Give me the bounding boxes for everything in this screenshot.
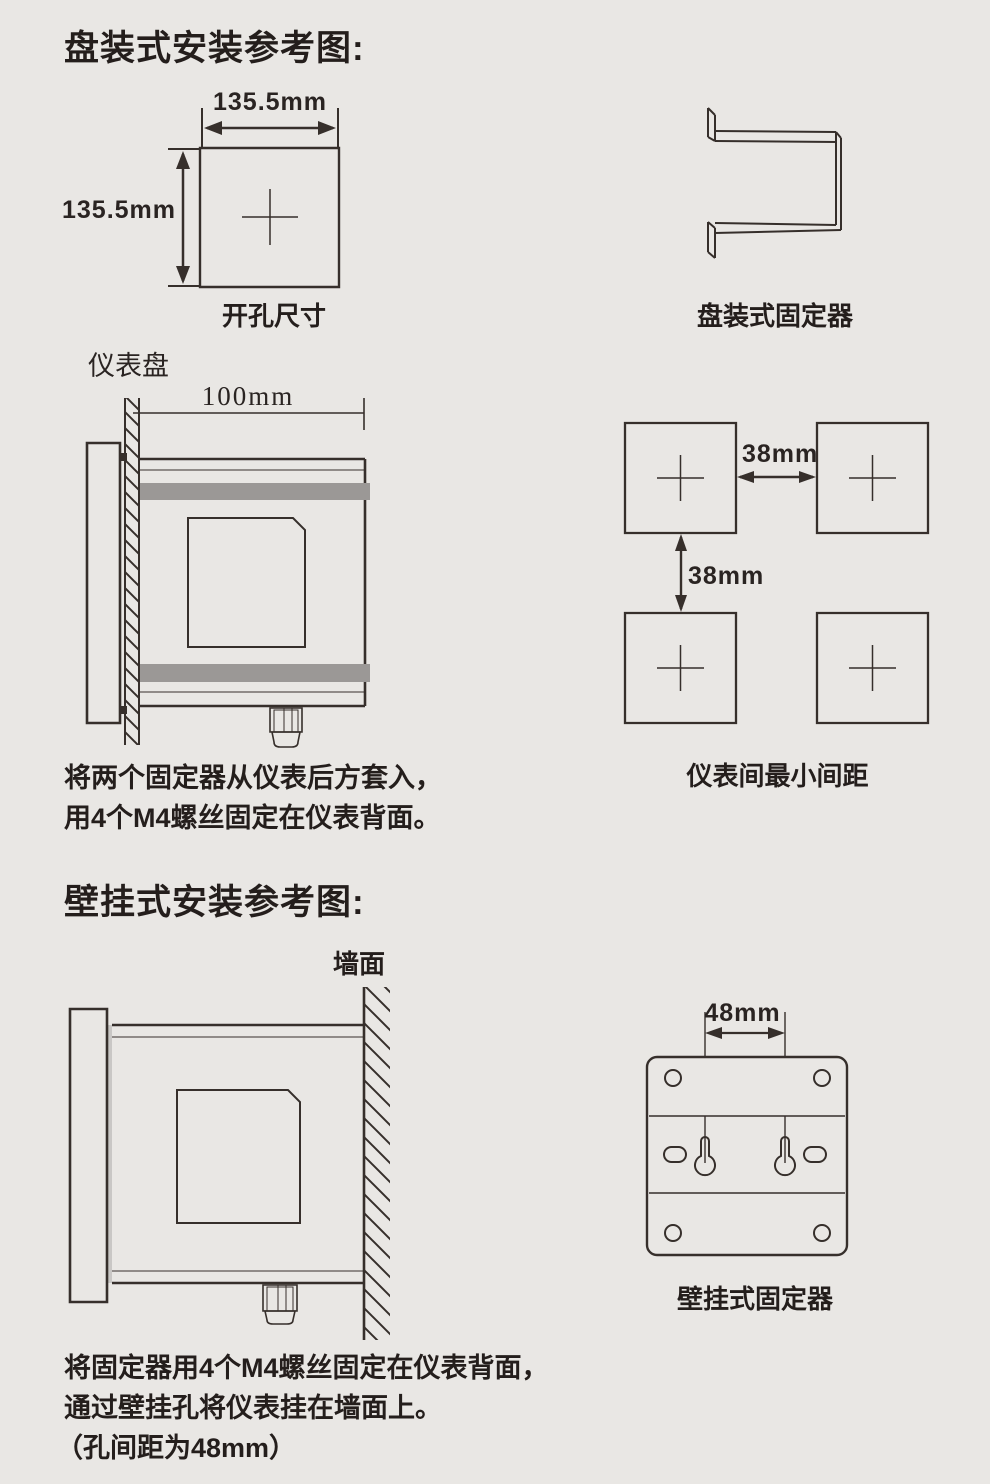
front-bezel: [87, 443, 120, 723]
panel-mount-note: 将两个固定器从仪表后方套入， 用4个M4螺丝固定在仪表背面。: [64, 758, 442, 838]
label-window: [177, 1090, 300, 1223]
wall-mount-note: 将固定器用4个M4螺丝固定在仪表背面， 通过壁挂孔将仪表挂在墙面上。 （孔间距为…: [64, 1348, 549, 1468]
cutout-width-dimension: 135.5mm: [145, 88, 395, 117]
front-bezel: [70, 1009, 107, 1302]
fixer-bar-bottom: [139, 664, 370, 682]
wall-note-line2: 通过壁挂孔将仪表挂在墙面上。: [64, 1388, 549, 1428]
cable-gland: [270, 708, 302, 747]
vertical-gap-dimension: 38mm: [688, 562, 764, 591]
wall-note-line1: 将固定器用4个M4螺丝固定在仪表背面，: [64, 1348, 549, 1388]
wall-mount-side-view: [50, 975, 400, 1345]
panel-wall-hatch: [125, 398, 139, 745]
wall-note-line3: （孔间距为48mm）: [56, 1428, 549, 1468]
panel-mount-title: 盘装式安装参考图:: [64, 20, 365, 71]
panel-fixer-bracket-drawing: [690, 95, 860, 270]
wall-hatch: [364, 987, 390, 1340]
panel-mount-side-view: [55, 390, 385, 760]
minimum-spacing-caption: 仪表间最小间距: [660, 756, 895, 793]
installation-diagram-page: 盘装式安装参考图: 135.5mm 135.5mm 开孔尺寸: [0, 0, 990, 1484]
cutout-caption: 开孔尺寸: [204, 296, 344, 333]
label-window: [188, 518, 305, 647]
panel-fixer-caption: 盘装式固定器: [690, 296, 860, 333]
hole-spacing-dimension: 48mm: [660, 999, 825, 1028]
cutout-height-dimension: 135.5mm: [62, 196, 176, 225]
cable-gland: [263, 1285, 297, 1324]
wall-fixer-plate-drawing: [630, 995, 870, 1275]
wall-fixer-caption: 壁挂式固定器: [655, 1279, 855, 1316]
horizontal-gap-dimension: 38mm: [742, 440, 818, 469]
instrument-body: [112, 1025, 364, 1283]
panel-note-line1: 将两个固定器从仪表后方套入，: [64, 758, 442, 798]
fixer-bar-top: [139, 483, 370, 500]
panel-note-line2: 用4个M4螺丝固定在仪表背面。: [64, 798, 442, 838]
instrument-panel-label: 仪表盘: [88, 344, 169, 383]
wall-mount-title: 壁挂式安装参考图:: [64, 874, 365, 925]
